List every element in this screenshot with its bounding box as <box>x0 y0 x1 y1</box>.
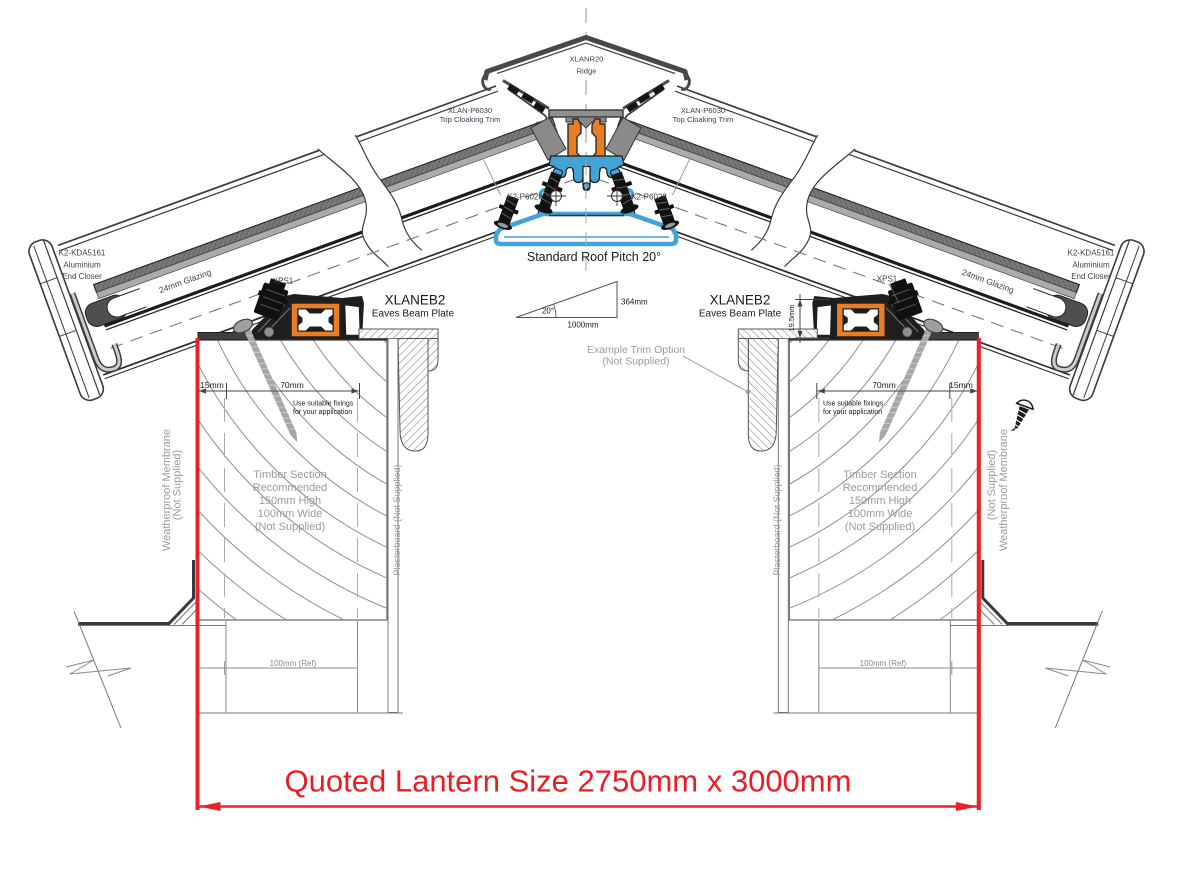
svg-text:70mm: 70mm <box>872 380 896 390</box>
svg-text:Timber Section: Timber Section <box>253 469 327 481</box>
svg-text:Example Trim Option: Example Trim Option <box>587 344 685 356</box>
svg-text:(Not Supplied): (Not Supplied) <box>172 450 184 520</box>
svg-text:Top Cloaking Trim: Top Cloaking Trim <box>440 115 501 124</box>
svg-text:Plasterboard (Not Supplied): Plasterboard (Not Supplied) <box>772 464 782 575</box>
svg-text:XLANR20: XLANR20 <box>570 54 604 63</box>
svg-text:(Not Supplied): (Not Supplied) <box>255 521 325 533</box>
svg-text:K2-P6028: K2-P6028 <box>507 193 543 202</box>
svg-text:Top Cloaking Trim: Top Cloaking Trim <box>673 115 734 124</box>
svg-text:End Closer: End Closer <box>1071 272 1111 281</box>
svg-text:Aluminium: Aluminium <box>1072 260 1110 269</box>
svg-text:Timber Section: Timber Section <box>843 469 917 481</box>
svg-text:(Not Supplied): (Not Supplied) <box>602 356 669 368</box>
svg-text:150mm High: 150mm High <box>849 495 911 507</box>
svg-text:End Closer: End Closer <box>62 272 102 281</box>
svg-text:(Not Supplied): (Not Supplied) <box>845 521 915 533</box>
svg-text:Standard Roof Pitch 20°: Standard Roof Pitch 20° <box>527 250 661 264</box>
svg-text:Weatherproof Membrane: Weatherproof Membrane <box>998 429 1010 551</box>
svg-text:100mm (Ref): 100mm (Ref) <box>860 659 907 668</box>
svg-text:Recommended: Recommended <box>843 482 918 494</box>
svg-text:100mm (Ref): 100mm (Ref) <box>270 659 317 668</box>
svg-text:K2-KDA5161: K2-KDA5161 <box>1068 249 1115 258</box>
svg-text:15mm: 15mm <box>200 380 224 390</box>
svg-text:Ridge: Ridge <box>577 67 597 76</box>
svg-text:XLANEB2: XLANEB2 <box>385 293 446 308</box>
svg-text:150mm High: 150mm High <box>259 495 321 507</box>
svg-text:XPS1: XPS1 <box>877 275 898 284</box>
svg-text:for your application: for your application <box>823 409 882 416</box>
svg-text:Quoted Lantern Size 2750mm x 3: Quoted Lantern Size 2750mm x 3000mm <box>285 764 852 799</box>
svg-text:Aluminium: Aluminium <box>63 260 101 269</box>
svg-text:XPS1: XPS1 <box>273 277 294 286</box>
svg-text:(Not Supplied): (Not Supplied) <box>986 450 998 520</box>
svg-text:20°: 20° <box>542 307 554 316</box>
svg-text:15mm: 15mm <box>949 380 973 390</box>
svg-text:70mm: 70mm <box>280 380 304 390</box>
svg-text:for your application: for your application <box>293 409 352 416</box>
svg-text:1000mm: 1000mm <box>567 321 598 330</box>
svg-text:100mm Wide: 100mm Wide <box>258 508 323 520</box>
svg-text:100mm Wide: 100mm Wide <box>848 508 913 520</box>
svg-text:Use suitable fixings: Use suitable fixings <box>823 401 884 408</box>
svg-text:Recommended: Recommended <box>253 482 328 494</box>
svg-text:K2-P6028: K2-P6028 <box>631 193 667 202</box>
svg-text:Eaves Beam Plate: Eaves Beam Plate <box>699 309 782 320</box>
svg-text:XLANEB2: XLANEB2 <box>710 293 771 308</box>
svg-text:Use suitable fixings: Use suitable fixings <box>293 401 354 408</box>
svg-text:XLAN-P6030: XLAN-P6030 <box>681 106 725 115</box>
svg-text:Eaves Beam Plate: Eaves Beam Plate <box>372 309 455 320</box>
svg-text:K2-KDA5161: K2-KDA5161 <box>59 249 106 258</box>
svg-text:Plasterboard (Not Supplied): Plasterboard (Not Supplied) <box>392 464 402 575</box>
svg-text:XLAN-P6030: XLAN-P6030 <box>448 106 492 115</box>
svg-text:19.5mm: 19.5mm <box>787 304 796 331</box>
svg-text:364mm: 364mm <box>621 298 648 307</box>
